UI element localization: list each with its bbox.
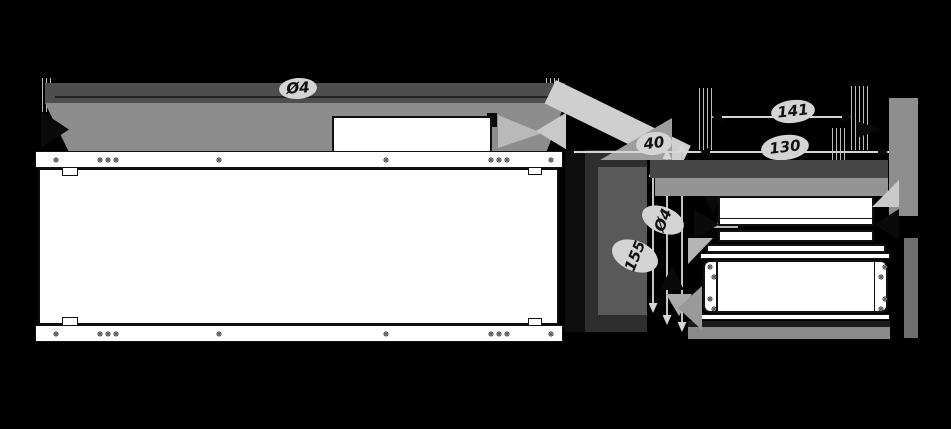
front-view-panel bbox=[38, 168, 559, 325]
middle-dark-band bbox=[565, 150, 585, 332]
hole bbox=[879, 275, 884, 280]
dimension-label-side-upper: 141 bbox=[770, 98, 816, 125]
hole bbox=[549, 157, 554, 162]
hole bbox=[497, 157, 502, 162]
side-arrowhead-left-icon bbox=[694, 209, 719, 240]
hole bbox=[98, 157, 103, 162]
bottom-view-edge-top bbox=[700, 253, 890, 259]
hole bbox=[489, 331, 494, 336]
hole bbox=[54, 331, 59, 336]
dim-arrow-right2-icon bbox=[878, 147, 888, 157]
hole bbox=[505, 331, 510, 336]
bottom-view-plate bbox=[703, 260, 888, 313]
side-view-strip-2 bbox=[706, 244, 886, 253]
hole bbox=[114, 331, 119, 336]
hole bbox=[497, 331, 502, 336]
hole bbox=[489, 157, 494, 162]
front-view-step-top-right bbox=[528, 168, 542, 175]
extension-lines-sideview-left bbox=[699, 88, 712, 150]
side-view-band-light bbox=[655, 178, 888, 196]
hole bbox=[217, 331, 222, 336]
hole bbox=[505, 157, 510, 162]
hole bbox=[712, 275, 717, 280]
hole bbox=[384, 331, 389, 336]
plate-bend-line-right bbox=[874, 262, 876, 311]
technical-drawing-canvas: Ø4 40 Ø4 155 141 130 bbox=[0, 0, 951, 429]
hole bbox=[883, 297, 888, 302]
side-view-body bbox=[718, 196, 874, 226]
front-view-top-flange bbox=[35, 151, 563, 168]
extension-lines-sideview-right bbox=[851, 86, 870, 150]
vertical-dimension-line-1 bbox=[652, 176, 654, 304]
front-view-bottom-flange bbox=[35, 325, 563, 342]
hole bbox=[549, 331, 554, 336]
front-view-step-bottom-right bbox=[528, 318, 542, 325]
dim-arrow-left-icon bbox=[712, 112, 722, 122]
hole bbox=[384, 157, 389, 162]
bottom-view-edge-bottom bbox=[700, 314, 890, 320]
hole bbox=[54, 157, 59, 162]
hole bbox=[708, 297, 713, 302]
hole bbox=[883, 265, 888, 270]
bottom-view-gray-band bbox=[688, 327, 890, 339]
plate-bend-line-left bbox=[716, 262, 718, 311]
hole bbox=[712, 307, 717, 312]
dimension-label-side-lower: 130 bbox=[760, 132, 811, 163]
hole bbox=[114, 157, 119, 162]
hole bbox=[98, 331, 103, 336]
front-view-step-bottom-left bbox=[62, 317, 78, 325]
side-view-strip-1 bbox=[718, 230, 874, 242]
top-view-handle-recess bbox=[332, 116, 492, 151]
hole bbox=[879, 307, 884, 312]
side-view-band-dark bbox=[650, 160, 888, 178]
hole bbox=[106, 157, 111, 162]
bottom-view-gray-right bbox=[904, 238, 918, 338]
side-arrowhead-right-icon bbox=[874, 209, 899, 240]
front-view-step-top-left bbox=[62, 168, 78, 176]
hole bbox=[708, 265, 713, 270]
hole bbox=[217, 157, 222, 162]
hole bbox=[106, 331, 111, 336]
side-view-inner-line bbox=[720, 218, 872, 220]
